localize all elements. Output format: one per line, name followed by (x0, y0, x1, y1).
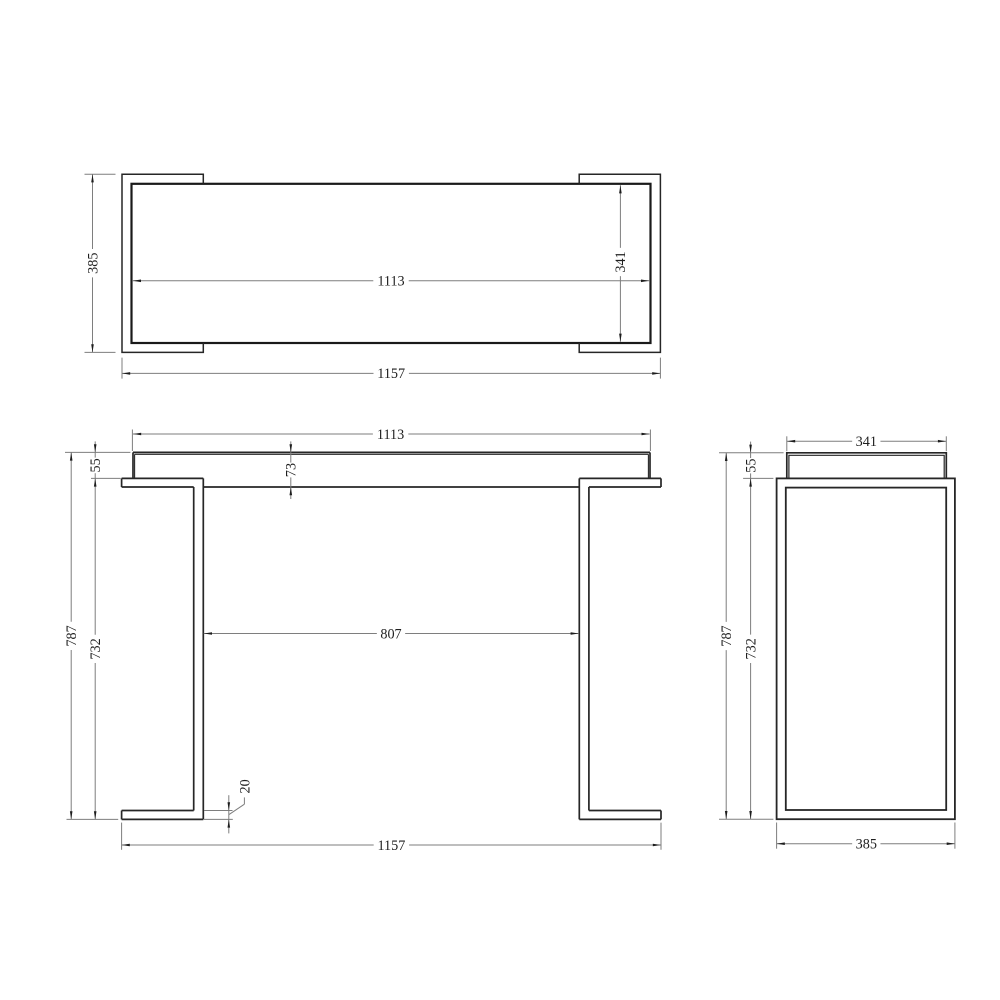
svg-text:385: 385 (85, 253, 101, 274)
svg-text:55: 55 (88, 458, 104, 472)
svg-text:732: 732 (743, 638, 759, 659)
svg-text:807: 807 (380, 626, 401, 642)
svg-text:1113: 1113 (377, 274, 404, 290)
svg-text:341: 341 (613, 251, 629, 272)
svg-text:55: 55 (743, 459, 759, 473)
svg-text:1157: 1157 (377, 366, 405, 382)
svg-text:732: 732 (88, 638, 104, 659)
svg-text:385: 385 (856, 837, 877, 853)
svg-text:1113: 1113 (377, 427, 404, 443)
svg-text:787: 787 (719, 625, 735, 646)
svg-text:20: 20 (238, 779, 254, 793)
svg-text:341: 341 (856, 434, 877, 450)
svg-text:1157: 1157 (377, 838, 405, 854)
svg-text:73: 73 (284, 463, 300, 477)
svg-text:787: 787 (64, 625, 80, 646)
